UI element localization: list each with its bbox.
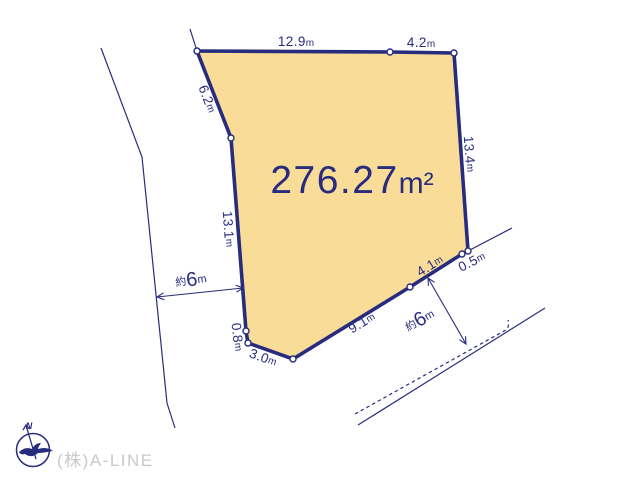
- south-road-outer-edge-line: [358, 308, 545, 425]
- dim-label-north2: 4.2m: [407, 35, 435, 50]
- company-name: (株)A-LINE: [57, 451, 154, 470]
- bird-icon: [19, 443, 53, 456]
- dim-label-west: 13.1m: [220, 210, 237, 247]
- dim-label-north1: 12.9m: [278, 34, 314, 49]
- vertex-dot: [290, 356, 296, 362]
- west-road-width-label: 約6m: [174, 267, 208, 293]
- vertex-dot: [228, 135, 234, 141]
- south-road-width-arrow: [428, 278, 466, 344]
- south-road-dashed-line: [355, 320, 509, 414]
- land-plot-diagram: 276.27m² 12.9m 4.2m 6.2m 13.4m 13.1m 0.8…: [0, 0, 640, 480]
- compass-logo: N: [17, 421, 54, 467]
- vertex-dot: [407, 284, 413, 290]
- vertex-dot: [194, 48, 200, 54]
- north-label: N: [26, 421, 33, 431]
- dim-label-southwest1: 0.8m: [229, 322, 247, 352]
- boundary-extension-line-east: [468, 228, 512, 251]
- west-road-edge-line: [101, 48, 175, 428]
- site-plan-canvas: 276.27m² 12.9m 4.2m 6.2m 13.4m 13.1m 0.8…: [0, 0, 640, 480]
- west-road-width-arrow: [157, 288, 243, 297]
- south-road-width-label: 約6m: [401, 303, 439, 338]
- vertex-dot: [451, 50, 457, 56]
- vertex-dot: [387, 49, 393, 55]
